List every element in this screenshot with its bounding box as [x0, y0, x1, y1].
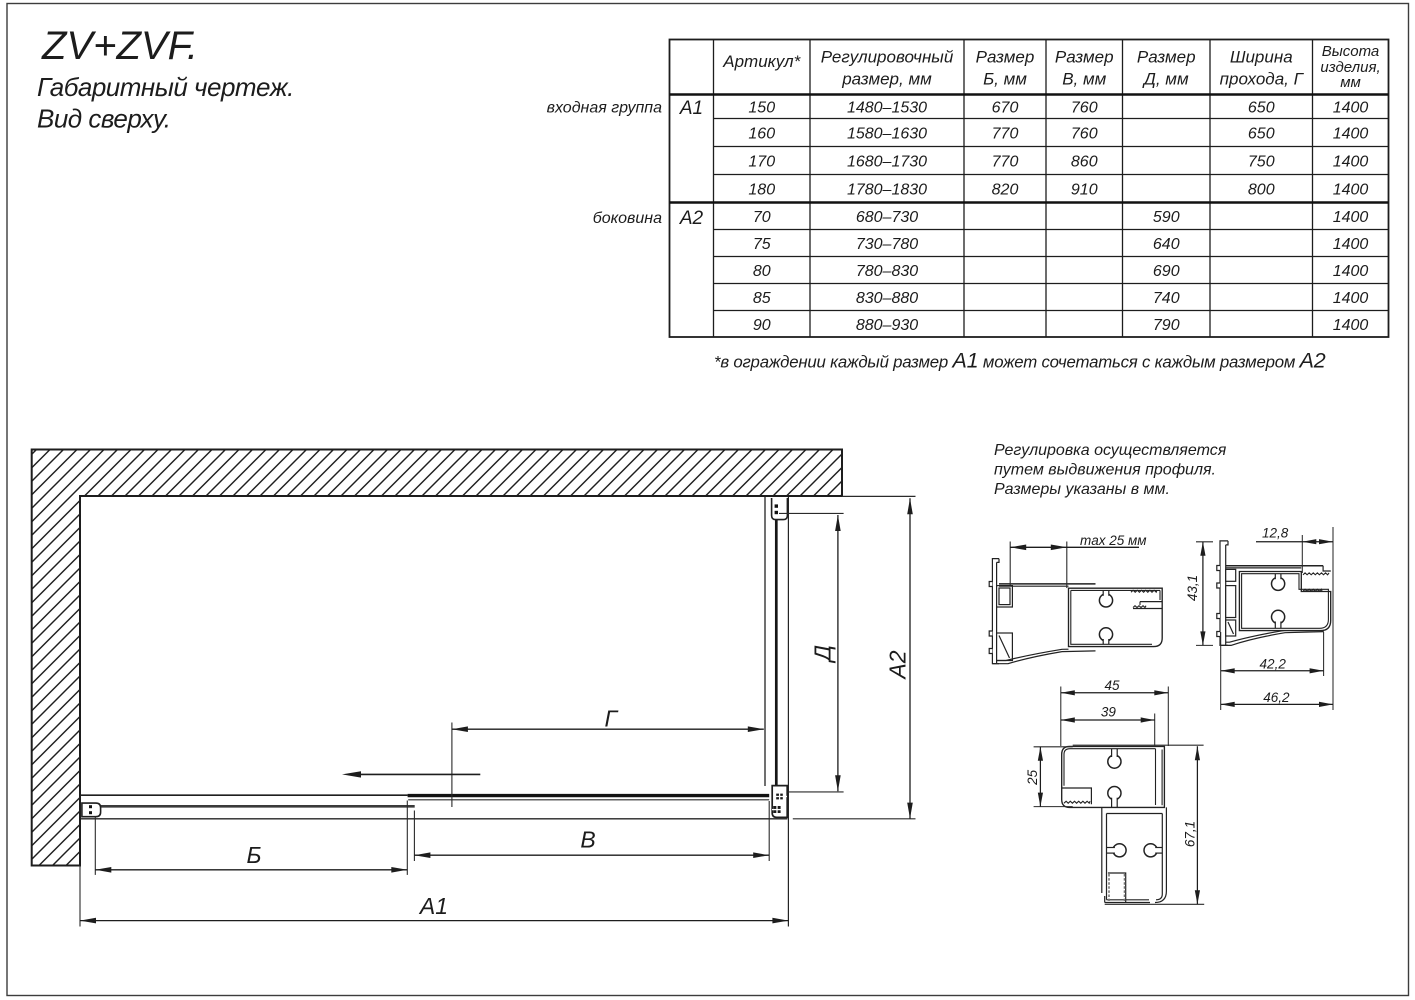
svg-text:650: 650 [1248, 100, 1275, 117]
svg-text:1680–1730: 1680–1730 [847, 154, 927, 171]
svg-text:170: 170 [748, 154, 775, 171]
svg-text:Регулировочный: Регулировочный [821, 48, 954, 67]
svg-text:Ширина: Ширина [1230, 48, 1293, 67]
svg-text:Б: Б [247, 842, 262, 868]
svg-text:*в ограждении каждый размер А1: *в ограждении каждый размер А1 может соч… [714, 349, 1326, 373]
svg-text:830–880: 830–880 [856, 290, 918, 307]
svg-text:Вид сверху.: Вид сверху. [37, 104, 170, 134]
svg-text:Размер: Размер [1055, 48, 1114, 67]
svg-text:входная группа: входная группа [547, 100, 662, 117]
svg-text:1400: 1400 [1333, 154, 1369, 171]
svg-text:650: 650 [1248, 126, 1275, 143]
svg-text:А1: А1 [418, 893, 448, 919]
svg-text:42,2: 42,2 [1260, 656, 1287, 671]
svg-text:880–930: 880–930 [856, 317, 918, 334]
svg-text:Артикул*: Артикул* [722, 52, 801, 71]
svg-text:1400: 1400 [1333, 290, 1369, 307]
svg-text:45: 45 [1104, 678, 1120, 693]
svg-text:740: 740 [1153, 290, 1180, 307]
svg-text:1400: 1400 [1333, 236, 1369, 253]
svg-text:В, мм: В, мм [1062, 70, 1106, 89]
svg-text:760: 760 [1071, 100, 1098, 117]
svg-text:1400: 1400 [1333, 126, 1369, 143]
svg-text:путем выдвижения профиля.: путем выдвижения профиля. [994, 462, 1216, 479]
svg-text:1480–1530: 1480–1530 [847, 100, 927, 117]
svg-text:670: 670 [992, 100, 1019, 117]
svg-text:12,8: 12,8 [1262, 526, 1289, 541]
svg-text:Размер: Размер [1137, 48, 1196, 67]
svg-text:90: 90 [753, 317, 771, 334]
svg-text:А1: А1 [679, 98, 703, 119]
svg-text:ZV+ZVF.: ZV+ZVF. [41, 24, 198, 68]
svg-text:730–780: 730–780 [856, 236, 918, 253]
svg-text:780–830: 780–830 [856, 263, 918, 280]
svg-text:1580–1630: 1580–1630 [847, 126, 927, 143]
svg-text:80: 80 [753, 263, 771, 280]
svg-text:39: 39 [1101, 704, 1117, 719]
svg-text:67,1: 67,1 [1183, 821, 1198, 847]
svg-text:790: 790 [1153, 317, 1180, 334]
svg-text:760: 760 [1071, 126, 1098, 143]
svg-text:590: 590 [1153, 209, 1180, 226]
svg-text:43,1: 43,1 [1185, 575, 1200, 601]
svg-text:Д, мм: Д, мм [1142, 70, 1189, 89]
svg-text:70: 70 [753, 209, 771, 226]
svg-text:В: В [580, 827, 595, 853]
svg-text:770: 770 [992, 154, 1019, 171]
svg-text:46,2: 46,2 [1263, 690, 1290, 705]
svg-text:Г: Г [604, 706, 618, 732]
svg-text:1400: 1400 [1333, 209, 1369, 226]
svg-text:А2: А2 [679, 208, 704, 229]
svg-text:750: 750 [1248, 154, 1275, 171]
svg-text:прохода, Г: прохода, Г [1220, 70, 1305, 89]
svg-text:мм: мм [1340, 74, 1361, 91]
svg-text:75: 75 [753, 236, 771, 253]
svg-text:640: 640 [1153, 236, 1180, 253]
svg-text:690: 690 [1153, 263, 1180, 280]
svg-text:680–730: 680–730 [856, 209, 918, 226]
svg-text:770: 770 [992, 126, 1019, 143]
svg-text:910: 910 [1071, 182, 1098, 199]
svg-text:1400: 1400 [1333, 100, 1369, 117]
svg-text:1400: 1400 [1333, 263, 1369, 280]
svg-text:1400: 1400 [1333, 317, 1369, 334]
svg-text:Размеры указаны в мм.: Размеры указаны в мм. [994, 481, 1170, 498]
svg-text:860: 860 [1071, 154, 1098, 171]
svg-text:боковина: боковина [593, 210, 662, 227]
svg-text:1400: 1400 [1333, 182, 1369, 199]
svg-text:820: 820 [992, 182, 1019, 199]
svg-text:85: 85 [753, 290, 771, 307]
svg-text:Регулировка осуществляется: Регулировка осуществляется [994, 442, 1227, 459]
svg-text:25: 25 [1025, 769, 1040, 786]
svg-text:800: 800 [1248, 182, 1275, 199]
svg-text:max 25 мм: max 25 мм [1080, 533, 1147, 548]
svg-text:180: 180 [748, 182, 775, 199]
svg-text:150: 150 [748, 100, 775, 117]
svg-text:Д: Д [810, 645, 836, 664]
svg-text:Габаритный чертеж.: Габаритный чертеж. [37, 72, 294, 102]
svg-text:Б, мм: Б, мм [983, 70, 1027, 89]
svg-text:Высота: Высота [1322, 43, 1380, 60]
svg-text:А2: А2 [885, 650, 911, 680]
svg-text:размер, мм: размер, мм [841, 70, 932, 89]
svg-text:1780–1830: 1780–1830 [847, 182, 927, 199]
svg-text:Размер: Размер [976, 48, 1035, 67]
svg-text:160: 160 [748, 126, 775, 143]
